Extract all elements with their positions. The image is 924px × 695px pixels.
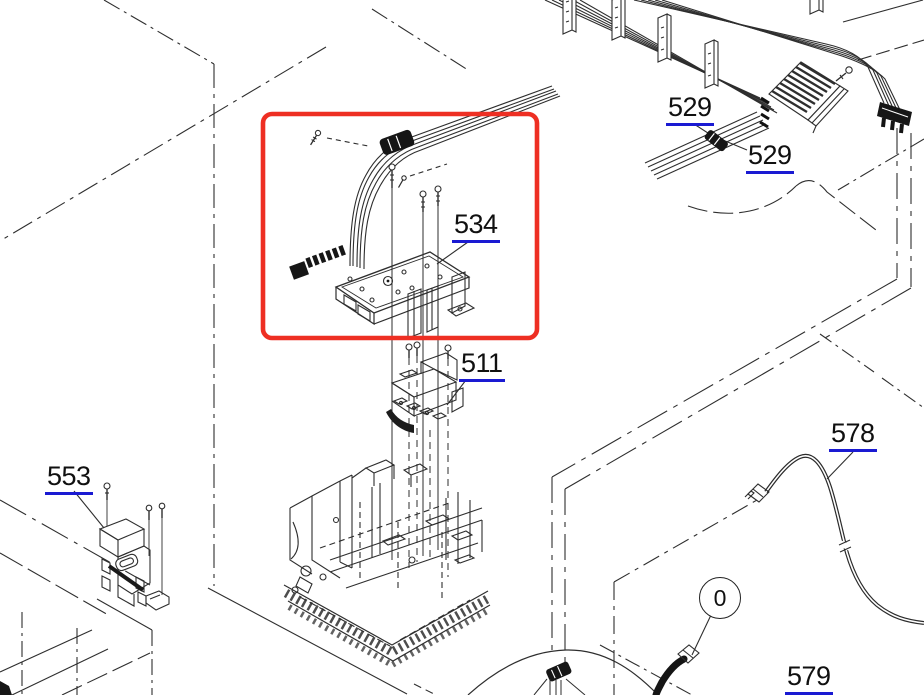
screw <box>406 344 412 358</box>
screw <box>435 186 441 206</box>
screw <box>414 342 420 356</box>
part-553-bracket-drawing <box>74 483 169 610</box>
screw <box>308 129 321 146</box>
part-label-578[interactable]: 578 <box>829 420 877 452</box>
screw <box>397 175 407 189</box>
callout-0-badge[interactable]: 0 <box>699 577 741 619</box>
screw <box>445 345 451 359</box>
part-label-553[interactable]: 553 <box>45 463 93 495</box>
part-578-tube-drawing <box>745 452 924 623</box>
screw <box>420 191 426 212</box>
exploded-parts-diagram: 529 529 534 511 553 578 579 0 <box>0 0 924 695</box>
screw <box>836 67 852 81</box>
part-label-534[interactable]: 534 <box>452 211 500 243</box>
bottom-cut-cable-drawing <box>468 650 658 695</box>
part-534-board-drawing <box>288 86 560 560</box>
carriage-assembly-drawing <box>284 460 490 665</box>
hatched-board-drawing <box>760 62 852 133</box>
screw <box>389 164 395 188</box>
leader-line-534 <box>437 242 468 264</box>
part-label-511[interactable]: 511 <box>459 350 505 382</box>
part-579-cable-drawing <box>656 615 711 695</box>
screw <box>146 505 152 520</box>
part-label-579[interactable]: 579 <box>785 663 833 695</box>
screw <box>104 483 110 500</box>
part-label-529-top[interactable]: 529 <box>666 94 714 126</box>
part-label-529-bottom[interactable]: 529 <box>746 142 794 174</box>
screw <box>159 503 165 518</box>
